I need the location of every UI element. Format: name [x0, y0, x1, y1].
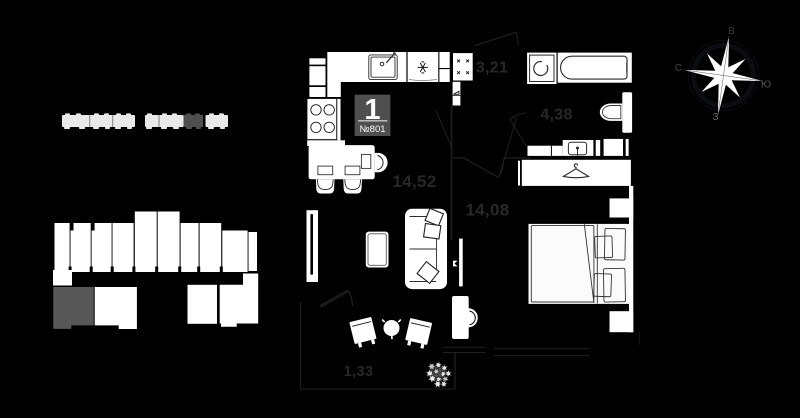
- svg-text:3,21: 3,21: [476, 60, 508, 77]
- svg-text:В: В: [728, 26, 735, 37]
- svg-text:1,33: 1,33: [344, 364, 373, 380]
- svg-text:14,52: 14,52: [392, 172, 436, 191]
- svg-text:З: З: [712, 112, 718, 123]
- svg-text:Ю: Ю: [761, 80, 771, 91]
- svg-text:С: С: [675, 63, 682, 74]
- svg-text:4,38: 4,38: [540, 107, 572, 124]
- svg-text:№801: №801: [359, 124, 385, 135]
- svg-text:14,08: 14,08: [465, 201, 509, 220]
